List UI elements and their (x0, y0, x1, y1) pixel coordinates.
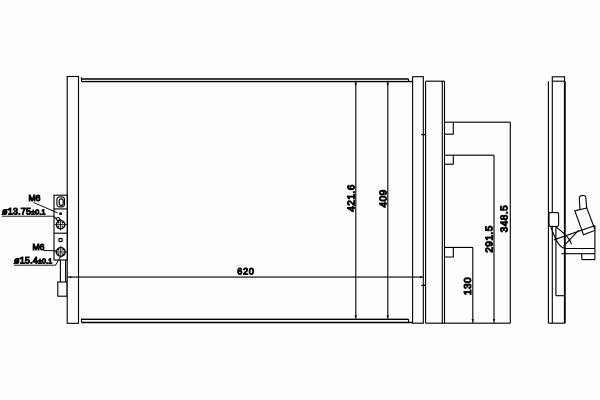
svg-text:348.5: 348.5 (499, 205, 510, 233)
svg-text:M6: M6 (33, 242, 45, 252)
svg-text:620: 620 (237, 267, 254, 277)
svg-text:409: 409 (378, 189, 389, 207)
svg-text:M6: M6 (29, 193, 41, 203)
svg-text:421.6: 421.6 (346, 184, 357, 212)
svg-text:ø15.4±0.1: ø15.4±0.1 (14, 256, 52, 266)
svg-text:291.5: 291.5 (485, 225, 496, 253)
svg-text:ø13.75±0.1: ø13.75±0.1 (2, 206, 46, 216)
svg-text:130: 130 (463, 277, 474, 295)
